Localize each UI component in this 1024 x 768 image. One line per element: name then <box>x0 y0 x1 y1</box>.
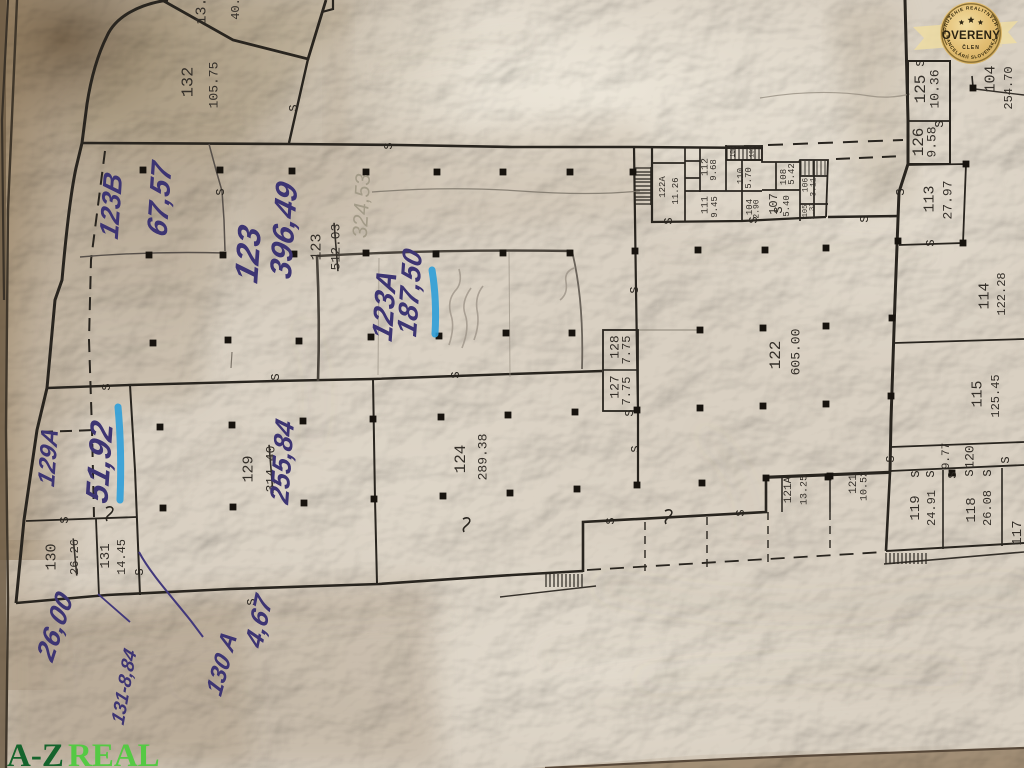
svg-text:123B: 123B <box>93 169 128 242</box>
svg-text:107: 107 <box>767 193 781 215</box>
svg-text:S: S <box>269 373 283 380</box>
svg-text:118: 118 <box>964 497 980 522</box>
svg-text:24.91: 24.91 <box>925 490 939 526</box>
svg-text:289.38: 289.38 <box>476 434 491 481</box>
svg-text:130: 130 <box>44 543 61 570</box>
svg-text:S: S <box>734 509 748 516</box>
svg-text:7.75: 7.75 <box>620 336 634 365</box>
svg-text:S: S <box>629 445 643 452</box>
svg-text:27.97: 27.97 <box>941 180 956 219</box>
svg-text:ČLEN: ČLEN <box>962 44 980 51</box>
svg-text:S: S <box>924 470 938 477</box>
svg-text:S: S <box>894 188 908 195</box>
svg-text:S: S <box>981 469 995 476</box>
svg-text:S: S <box>449 371 463 378</box>
svg-text:S: S <box>662 217 676 224</box>
svg-text:S: S <box>946 471 960 478</box>
svg-text:115: 115 <box>970 380 987 407</box>
svg-text:7.75: 7.75 <box>620 377 634 406</box>
svg-text:396,49: 396,49 <box>263 177 304 282</box>
svg-text:S: S <box>914 59 928 66</box>
svg-text:S: S <box>58 516 72 523</box>
svg-text:51,92: 51,92 <box>79 417 120 507</box>
svg-text:132: 132 <box>180 67 199 98</box>
svg-text:S: S <box>909 470 923 477</box>
svg-text:124: 124 <box>452 445 470 474</box>
svg-text:120: 120 <box>963 445 978 468</box>
svg-text:A-Z: A-Z <box>7 738 64 768</box>
svg-text:5.42: 5.42 <box>787 163 797 185</box>
svg-text:117: 117 <box>1010 520 1024 545</box>
svg-text:119: 119 <box>908 495 924 520</box>
svg-text:5.40: 5.40 <box>782 195 792 217</box>
svg-text:106: 106 <box>730 146 737 157</box>
svg-text:S: S <box>858 215 872 222</box>
svg-text:105.75: 105.75 <box>207 62 222 109</box>
svg-text:5.70: 5.70 <box>744 167 754 189</box>
svg-text:40.: 40. <box>229 0 243 20</box>
svg-text:S: S <box>884 455 898 462</box>
svg-text:10.52: 10.52 <box>860 471 871 501</box>
svg-text:2.90: 2.90 <box>753 199 762 218</box>
svg-text:123: 123 <box>229 221 269 287</box>
svg-text:121: 121 <box>848 474 860 494</box>
svg-text:187,50: 187,50 <box>391 245 428 340</box>
svg-text:67,57: 67,57 <box>141 157 178 240</box>
svg-text:9.68: 9.68 <box>709 159 719 181</box>
svg-text:105: 105 <box>749 146 756 157</box>
svg-text:S: S <box>604 517 618 524</box>
svg-text:121A: 121A <box>783 476 795 503</box>
svg-text:S: S <box>214 188 228 195</box>
svg-text:255,84: 255,84 <box>264 416 300 508</box>
svg-text:REAL: REAL <box>68 738 160 768</box>
svg-text:S: S <box>999 456 1013 463</box>
svg-text:9.45: 9.45 <box>710 196 720 218</box>
svg-text:122.28: 122.28 <box>995 272 1009 315</box>
svg-text:125.45: 125.45 <box>989 374 1003 417</box>
svg-text:14.45: 14.45 <box>115 539 129 575</box>
svg-text:129A: 129A <box>34 425 64 490</box>
svg-text:122A: 122A <box>658 176 668 198</box>
svg-text:1.33: 1.33 <box>809 203 817 220</box>
svg-text:114: 114 <box>977 282 994 309</box>
svg-text:122: 122 <box>767 341 785 370</box>
svg-text:3.11: 3.11 <box>810 177 819 196</box>
svg-text:S: S <box>963 469 977 476</box>
svg-text:S: S <box>382 142 396 149</box>
svg-text:11.26: 11.26 <box>671 177 681 204</box>
svg-text:26.08: 26.08 <box>981 490 995 526</box>
svg-text:S: S <box>100 383 114 390</box>
svg-text:S: S <box>287 104 301 111</box>
svg-text:9.58: 9.58 <box>925 126 940 157</box>
svg-text:S: S <box>623 409 637 416</box>
svg-text:131: 131 <box>98 543 114 568</box>
svg-text:S: S <box>133 568 147 575</box>
svg-text:104: 104 <box>983 65 1000 92</box>
svg-text:254.70: 254.70 <box>1002 66 1016 109</box>
svg-text:S: S <box>924 239 938 246</box>
svg-text:605.00: 605.00 <box>789 329 804 376</box>
svg-text:113: 113 <box>922 185 939 212</box>
svg-text:324,53: 324,53 <box>349 173 375 239</box>
svg-text:9.77: 9.77 <box>941 443 953 469</box>
svg-text:13.: 13. <box>194 0 211 25</box>
svg-text:13.25: 13.25 <box>800 475 811 505</box>
svg-text:10.36: 10.36 <box>928 69 943 108</box>
svg-text:123: 123 <box>309 233 326 260</box>
svg-text:129: 129 <box>241 455 258 482</box>
svg-text:S: S <box>628 286 642 293</box>
